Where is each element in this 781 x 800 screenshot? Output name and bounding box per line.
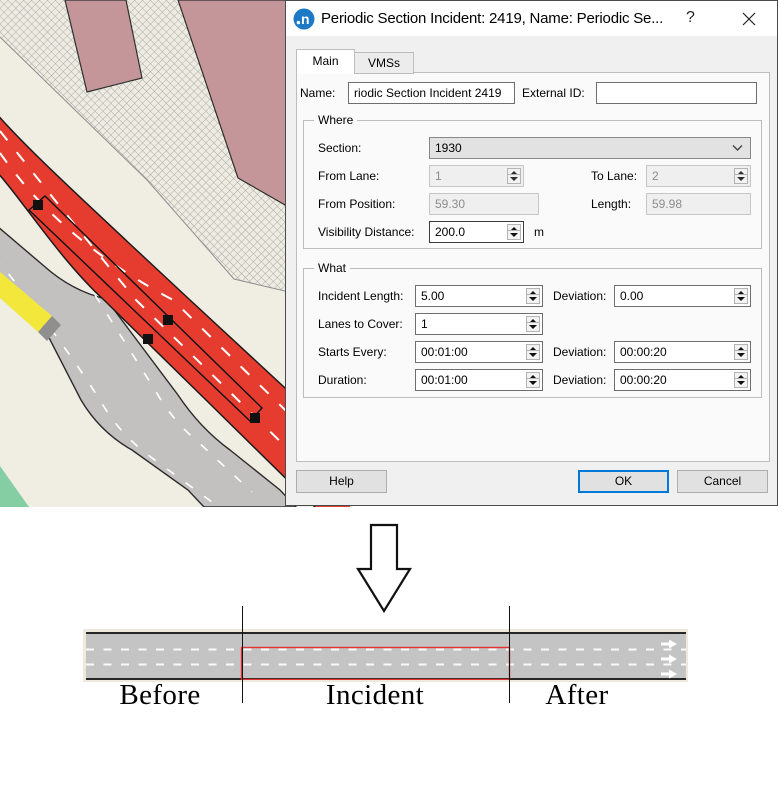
svg-text:n: n	[301, 11, 310, 27]
